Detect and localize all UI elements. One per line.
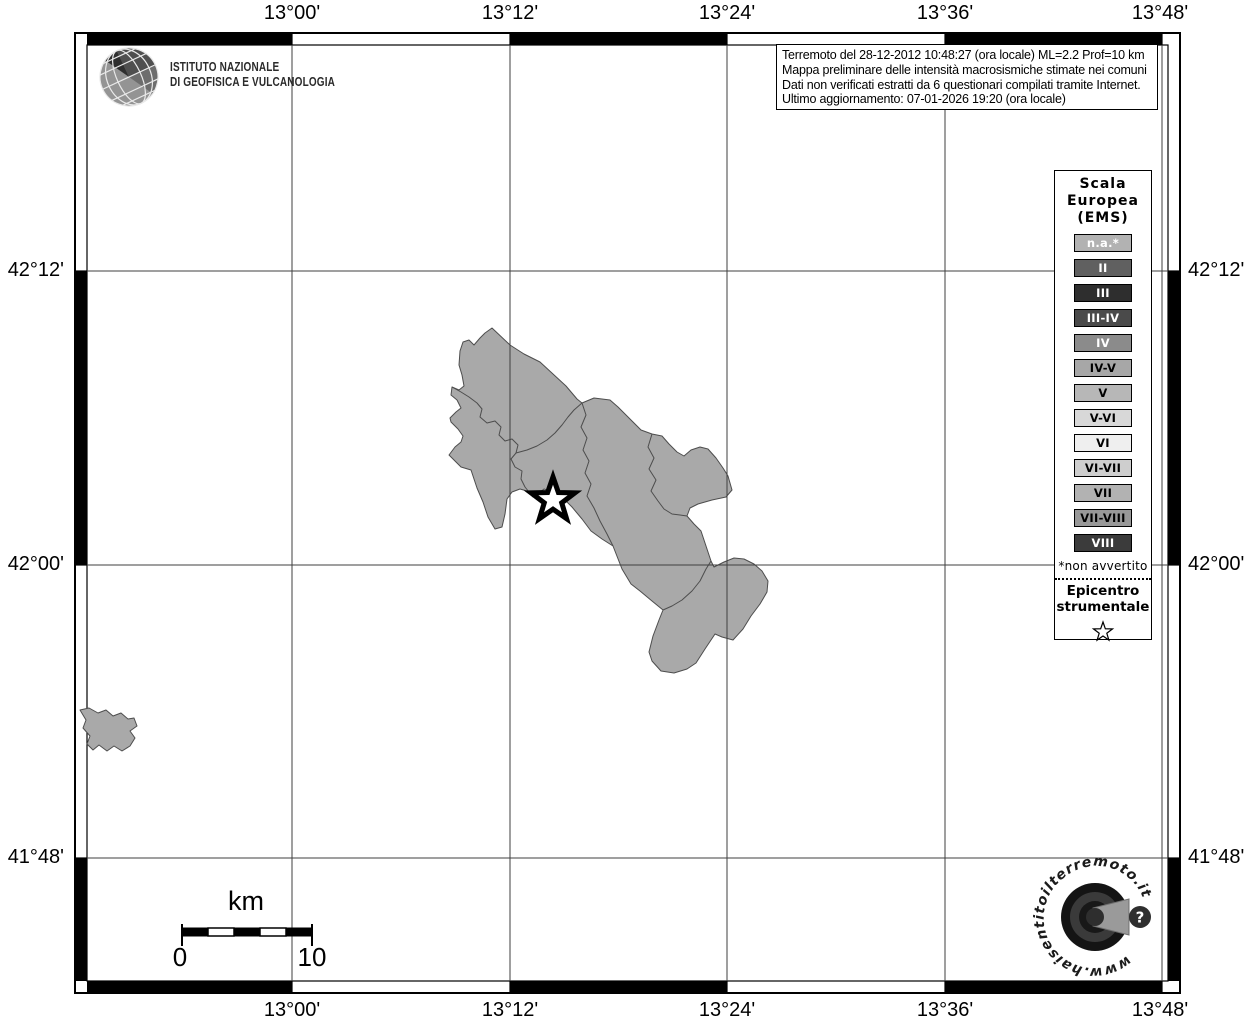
x-label-bottom-1: 13°12' [450, 999, 570, 1022]
legend-item-na: n.a.* [1074, 234, 1132, 252]
seismic-intensity-map: ? www.haisentitoilterremoto.it 13°00' 13… [0, 0, 1256, 1024]
legend-divider [1055, 578, 1151, 580]
y-label-right-1: 42°00' [1188, 553, 1256, 576]
legend-epicenter-line2: strumentale [1055, 599, 1151, 615]
legend-item-v: V [1074, 384, 1132, 402]
x-label-bottom-3: 13°36' [885, 999, 1005, 1022]
x-label-top-2: 13°24' [667, 2, 787, 25]
region-polygons [80, 328, 768, 751]
y-label-left-0: 42°12' [0, 259, 64, 282]
legend-title-line3: (EMS) [1055, 210, 1151, 227]
legend-title-line2: Europea [1055, 193, 1151, 210]
legend-item-vi: VI [1074, 434, 1132, 452]
svg-text:?: ? [1136, 909, 1145, 927]
legend-item-vii-viii: VII-VIII [1074, 509, 1132, 527]
legend-item-iii: III [1074, 284, 1132, 302]
municipality-cluster [449, 328, 768, 673]
scale-bar-unit: km [196, 886, 296, 917]
info-line-update: Ultimo aggiornamento: 07-01-2026 19:20 (… [782, 92, 1152, 107]
ems-legend: Scala Europea (EMS) n.a.* II III III-IV … [1054, 170, 1152, 640]
legend-title: Scala Europea (EMS) [1055, 176, 1151, 227]
scale-bar-min: 0 [155, 942, 205, 973]
x-label-top-1: 13°12' [450, 2, 570, 25]
municipality-southwest [80, 708, 137, 751]
ingv-logo-line1: ISTITUTO NAZIONALE [170, 60, 335, 75]
legend-item-v-vi: V-VI [1074, 409, 1132, 427]
y-label-left-2: 41°48' [0, 846, 64, 869]
legend-item-viii: VIII [1074, 534, 1132, 552]
x-label-bottom-2: 13°24' [667, 999, 787, 1022]
ingv-logo-line2: DI GEOFISICA E VULCANOLOGIA [170, 75, 335, 90]
x-label-bottom-4: 13°48' [1100, 999, 1220, 1022]
info-line-map: Mappa preliminare delle intensità macros… [782, 63, 1152, 78]
x-label-top-3: 13°36' [885, 2, 1005, 25]
y-label-right-0: 42°12' [1188, 259, 1256, 282]
legend-title-line1: Scala [1055, 176, 1151, 193]
legend-item-iv: IV [1074, 334, 1132, 352]
legend-star-icon [1055, 619, 1151, 649]
ingv-globe-icon [90, 38, 167, 115]
legend-item-vii: VII [1074, 484, 1132, 502]
legend-footnote: *non avvertito [1055, 559, 1151, 573]
x-label-bottom-0: 13°00' [232, 999, 352, 1022]
event-info-box: Terremoto del 28-12-2012 10:48:27 (ora l… [776, 44, 1158, 110]
watermark-logo: ? www.haisentitoilterremoto.it [1032, 853, 1155, 980]
ingv-logo: ISTITUTO NAZIONALE DI GEOFISICA E VULCAN… [170, 60, 335, 90]
x-label-top-4: 13°48' [1100, 2, 1220, 25]
x-label-top-0: 13°00' [232, 2, 352, 25]
legend-epicenter-line1: Epicentro [1055, 583, 1151, 599]
question-mark-icon: ? [1129, 906, 1151, 928]
legend-item-iv-v: IV-V [1074, 359, 1132, 377]
info-line-data: Dati non verificati estratti da 6 questi… [782, 78, 1152, 93]
legend-item-iii-iv: III-IV [1074, 309, 1132, 327]
y-label-right-2: 41°48' [1188, 846, 1256, 869]
legend-item-ii: II [1074, 259, 1132, 277]
scale-bar-max: 10 [287, 942, 337, 973]
y-label-left-1: 42°00' [0, 553, 64, 576]
legend-item-vi-vii: VI-VII [1074, 459, 1132, 477]
info-line-event: Terremoto del 28-12-2012 10:48:27 (ora l… [782, 48, 1152, 63]
